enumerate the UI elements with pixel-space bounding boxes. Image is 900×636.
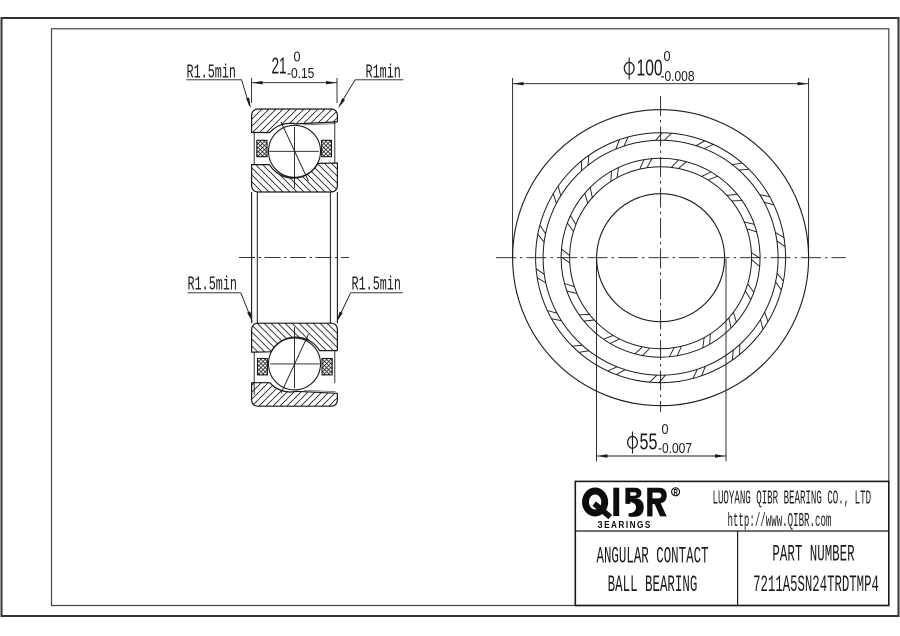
svg-text:-0.007: -0.007: [658, 440, 692, 457]
svg-text:0: 0: [664, 47, 671, 64]
svg-text:PART NUMBER: PART NUMBER: [772, 541, 854, 568]
svg-text:LUOYANG QIBR BEARING CO., LTD: LUOYANG QIBR BEARING CO., LTD: [713, 489, 872, 509]
svg-text:0: 0: [662, 420, 669, 437]
svg-text:0: 0: [294, 47, 301, 64]
svg-text:100: 100: [637, 56, 663, 82]
svg-text:http://www.QIBR.com: http://www.QIBR.com: [728, 512, 832, 532]
svg-text:55: 55: [640, 430, 658, 455]
svg-text:R1.5min: R1.5min: [188, 274, 237, 296]
svg-text:R: R: [673, 489, 677, 497]
svg-text:21: 21: [272, 54, 287, 80]
svg-text:R1.5min: R1.5min: [352, 274, 401, 296]
svg-text:ANGULAR CONTACT: ANGULAR CONTACT: [596, 543, 708, 570]
svg-text:7211A5SN24TRDTMP4: 7211A5SN24TRDTMP4: [753, 571, 879, 599]
svg-text:ЗEARINGS: ЗEARINGS: [598, 518, 652, 530]
svg-text:-0.008: -0.008: [661, 68, 695, 85]
svg-text:R1min: R1min: [366, 62, 401, 84]
svg-text:BALL BEARING: BALL BEARING: [608, 571, 698, 598]
svg-text:R1.5min: R1.5min: [187, 62, 236, 84]
svg-text:-0.15: -0.15: [287, 65, 314, 82]
